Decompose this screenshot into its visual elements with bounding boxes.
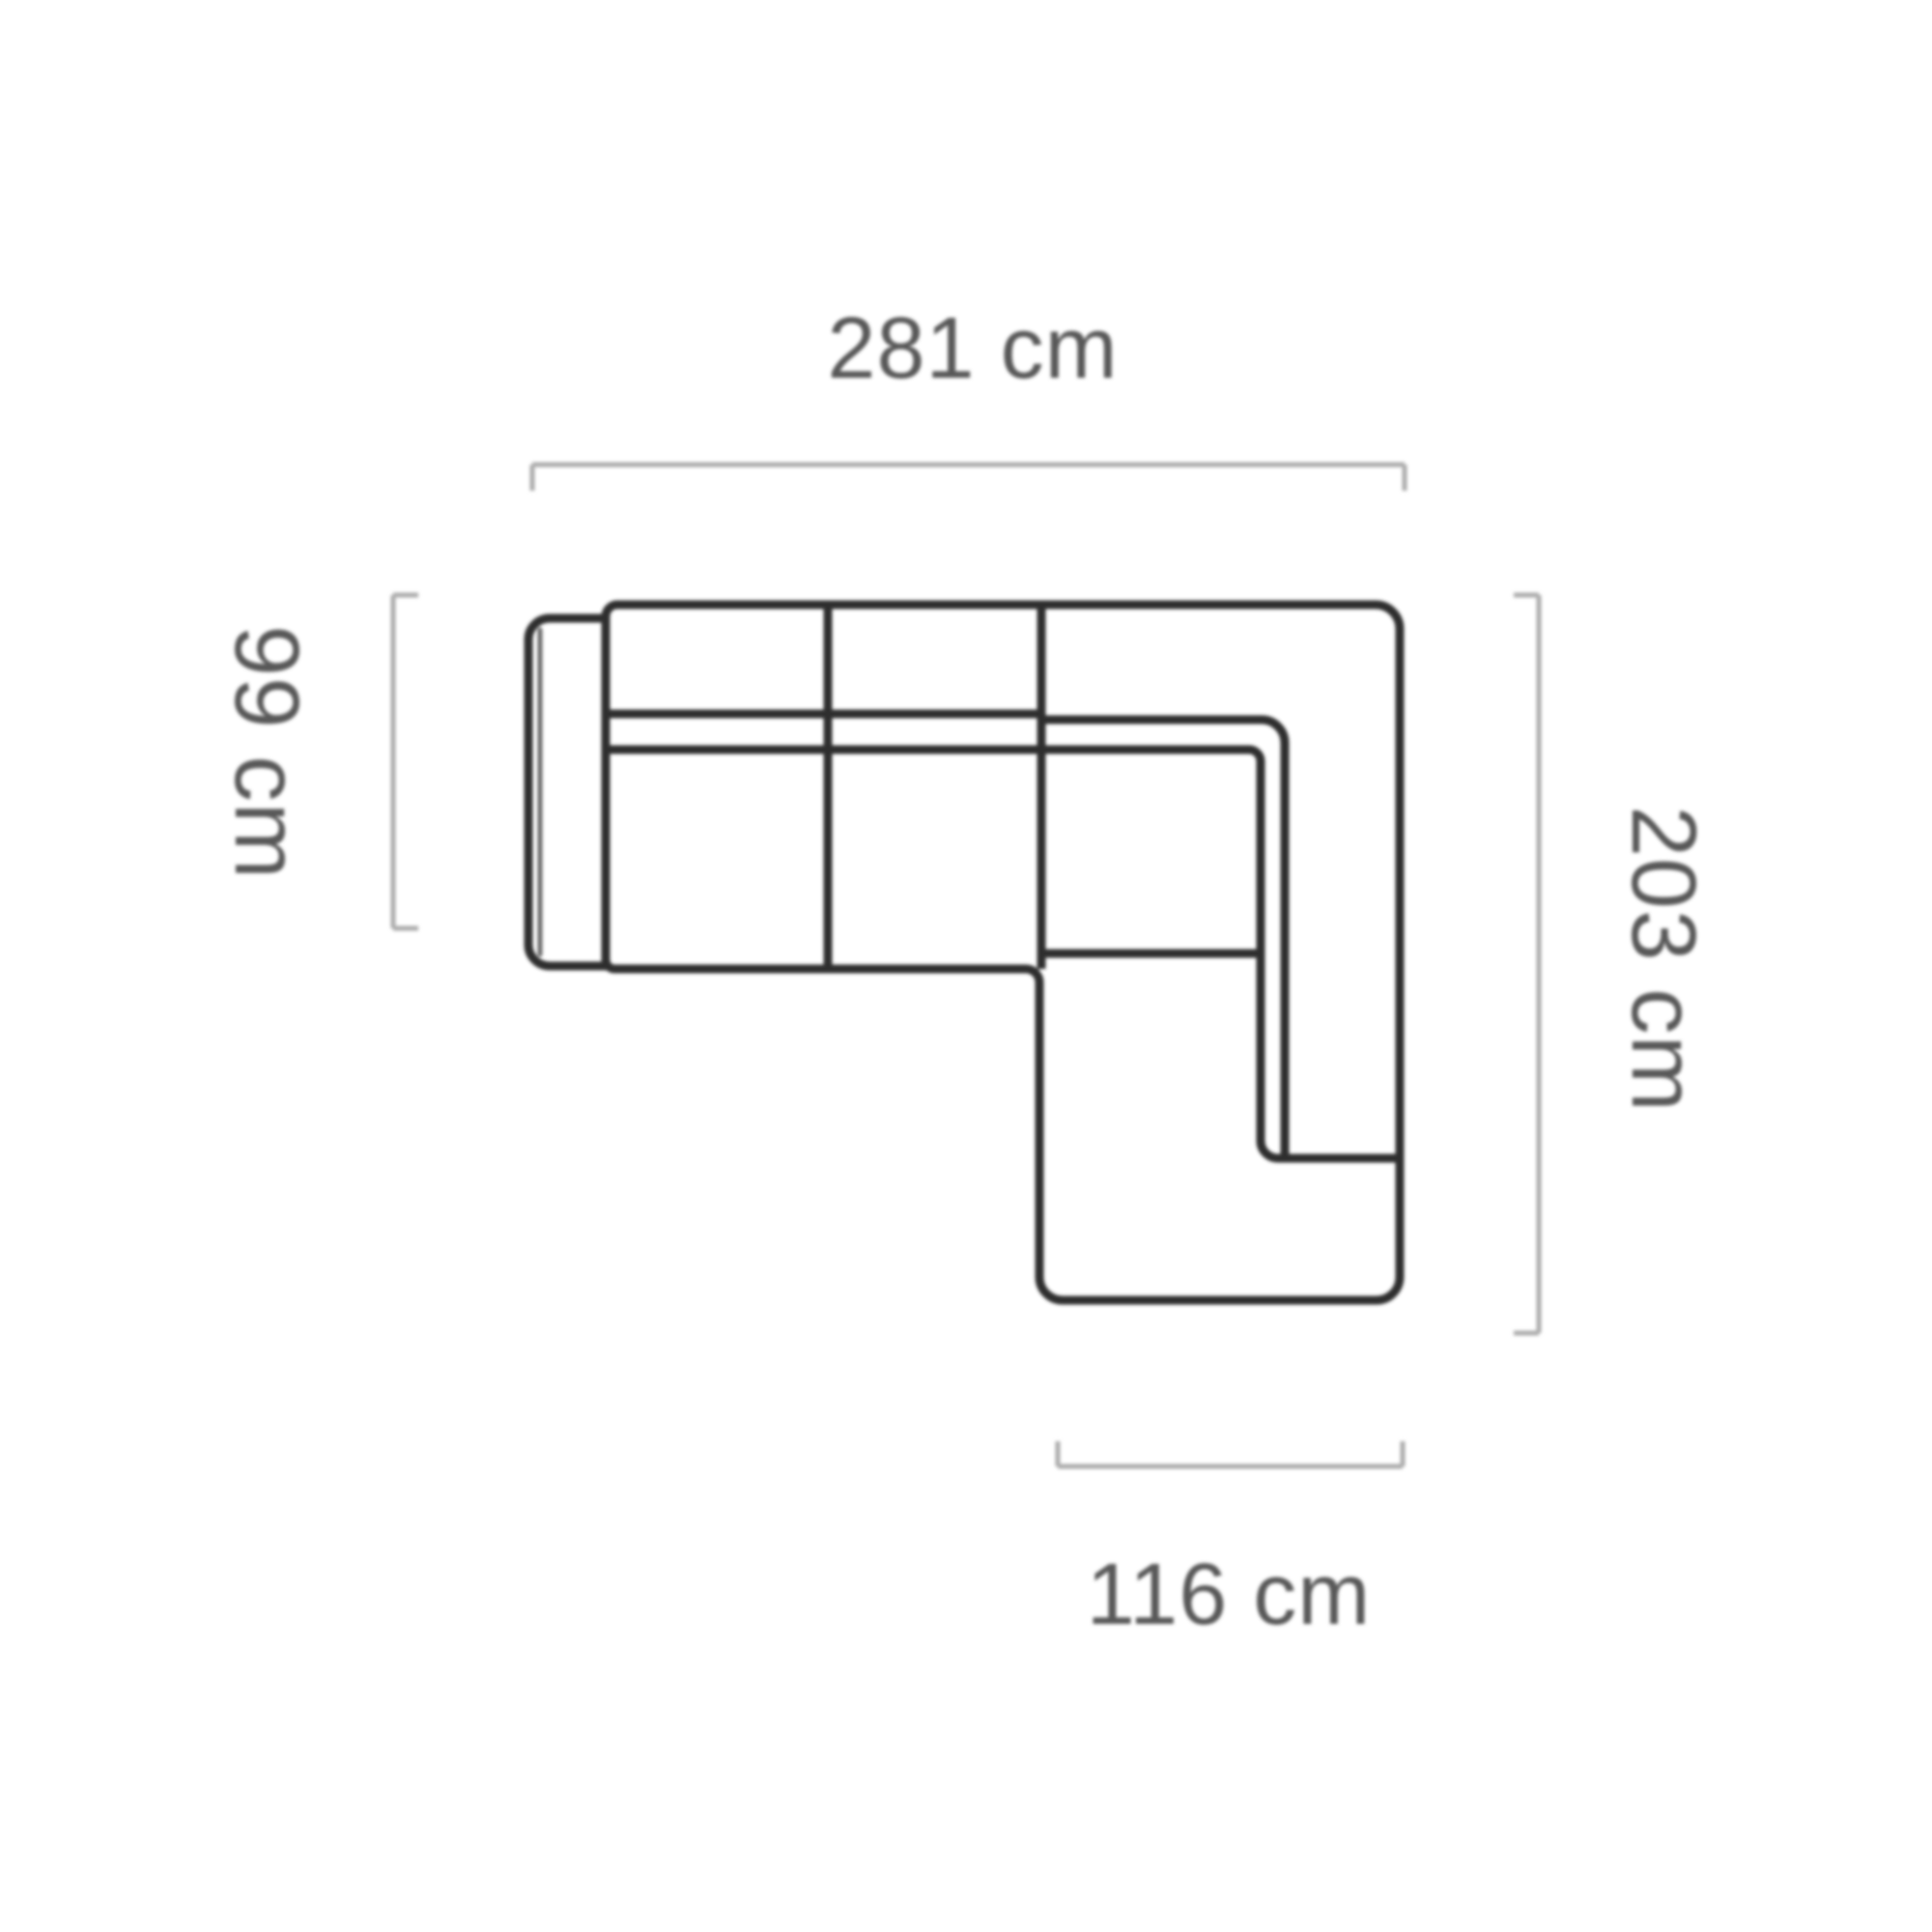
svg-text:99 cm: 99 cm bbox=[215, 625, 318, 880]
svg-text:203 cm: 203 cm bbox=[1612, 806, 1715, 1113]
svg-text:116 cm: 116 cm bbox=[1087, 1547, 1371, 1643]
svg-text:281 cm: 281 cm bbox=[827, 300, 1118, 397]
